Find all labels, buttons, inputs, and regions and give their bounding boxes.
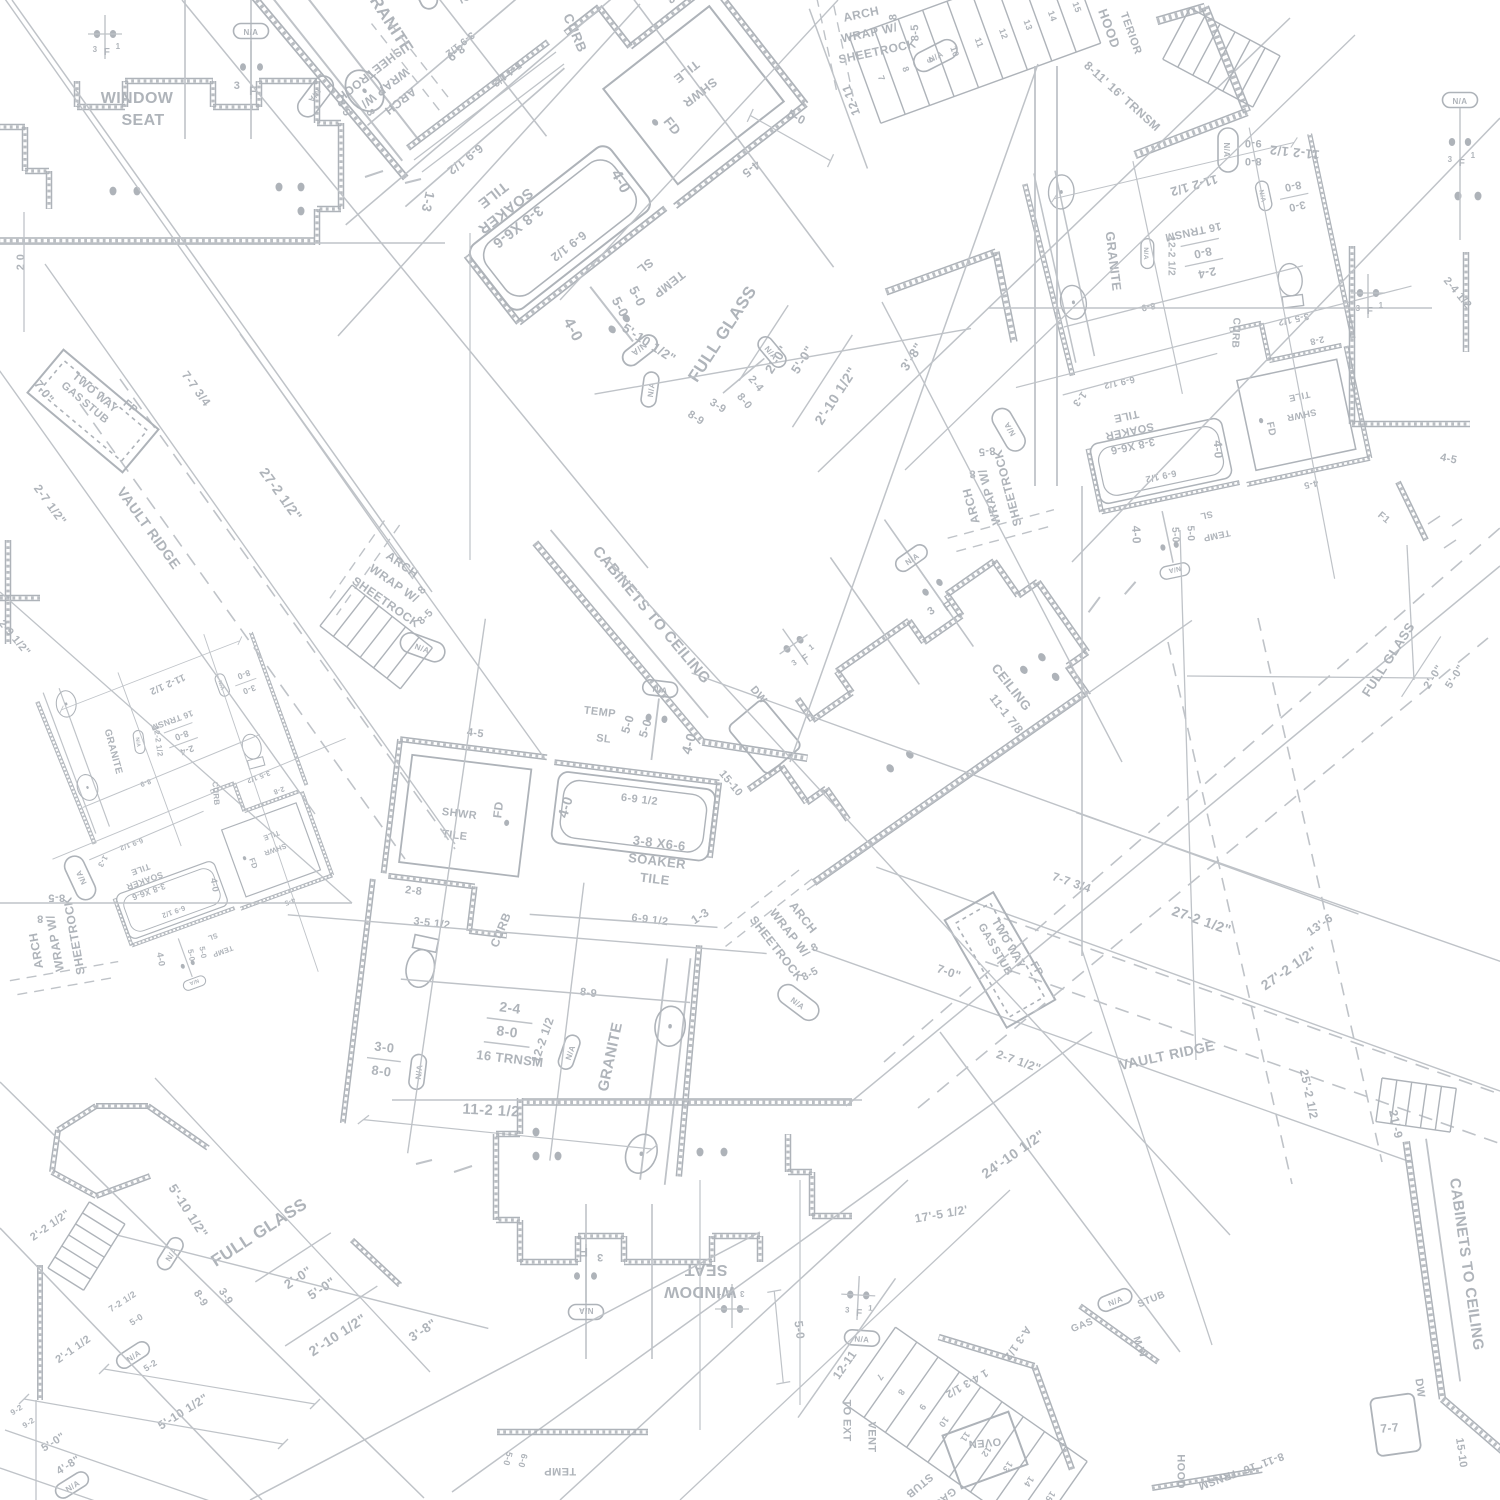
svg-text:5-0: 5-0 <box>1184 525 1196 541</box>
svg-text:3: 3 <box>1448 155 1453 164</box>
svg-text:5-0: 5-0 <box>1169 527 1181 543</box>
svg-text:1: 1 <box>116 42 121 51</box>
svg-text:4-0: 4-0 <box>1129 525 1144 544</box>
svg-text:F: F <box>580 1245 588 1259</box>
svg-text:3: 3 <box>845 1305 850 1314</box>
svg-text:12-2 1/2: 12-2 1/2 <box>1166 236 1177 276</box>
svg-text:3: 3 <box>739 1289 744 1298</box>
svg-text:8-0: 8-0 <box>1244 155 1261 167</box>
svg-text:8: 8 <box>37 912 44 924</box>
svg-text:7-7: 7-7 <box>1380 1420 1400 1436</box>
svg-text:11-2 1/2: 11-2 1/2 <box>462 1101 520 1121</box>
svg-text:3: 3 <box>597 1251 604 1263</box>
svg-text:WINDOW: WINDOW <box>101 90 174 107</box>
svg-text:SEAT: SEAT <box>121 112 164 129</box>
svg-text:2-8: 2-8 <box>404 884 422 898</box>
svg-text:N/A: N/A <box>579 1306 594 1315</box>
svg-text:TO EXT: TO EXT <box>840 1400 852 1442</box>
svg-text:F: F <box>1459 158 1466 169</box>
svg-text:F: F <box>856 1308 863 1319</box>
svg-text:3: 3 <box>1356 304 1361 313</box>
svg-text:2-4: 2-4 <box>499 998 522 1016</box>
svg-text:8-0: 8-0 <box>371 1062 393 1079</box>
svg-text:N/A: N/A <box>1222 143 1231 158</box>
svg-text:SEAT: SEAT <box>684 1261 727 1278</box>
svg-text:1: 1 <box>1471 151 1476 160</box>
svg-text:3: 3 <box>234 80 241 92</box>
svg-text:F: F <box>104 47 111 58</box>
svg-text:3-0: 3-0 <box>374 1038 396 1055</box>
svg-text:VENT: VENT <box>866 1422 878 1453</box>
svg-text:N/A: N/A <box>1142 247 1149 260</box>
svg-text:8: 8 <box>887 13 899 20</box>
svg-text:FD: FD <box>490 801 506 819</box>
svg-text:1: 1 <box>1379 301 1384 310</box>
svg-text:F: F <box>1367 306 1374 317</box>
svg-text:3: 3 <box>93 45 98 54</box>
svg-text:TEMP: TEMP <box>544 1465 576 1477</box>
svg-text:8-0: 8-0 <box>496 1022 519 1040</box>
svg-text:SL: SL <box>595 732 611 746</box>
svg-text:N/A: N/A <box>854 1334 870 1344</box>
svg-text:4-0: 4-0 <box>1211 440 1226 459</box>
svg-text:N/A: N/A <box>1453 97 1468 106</box>
svg-text:2 0: 2 0 <box>15 254 27 271</box>
svg-text:N/A: N/A <box>244 28 259 37</box>
